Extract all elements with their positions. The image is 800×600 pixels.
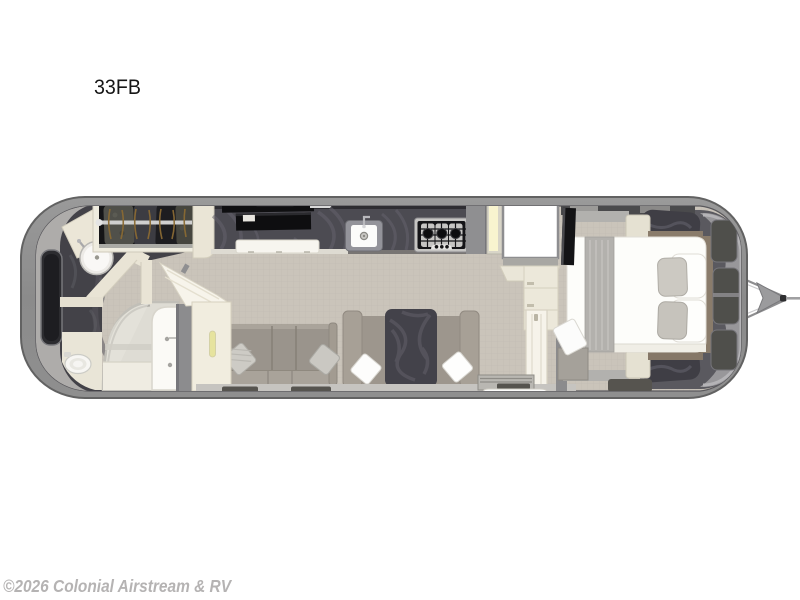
svg-text:©2026 Colonial Airstream & RV: ©2026 Colonial Airstream & RV xyxy=(3,576,232,596)
svg-text:33FB: 33FB xyxy=(94,75,141,99)
